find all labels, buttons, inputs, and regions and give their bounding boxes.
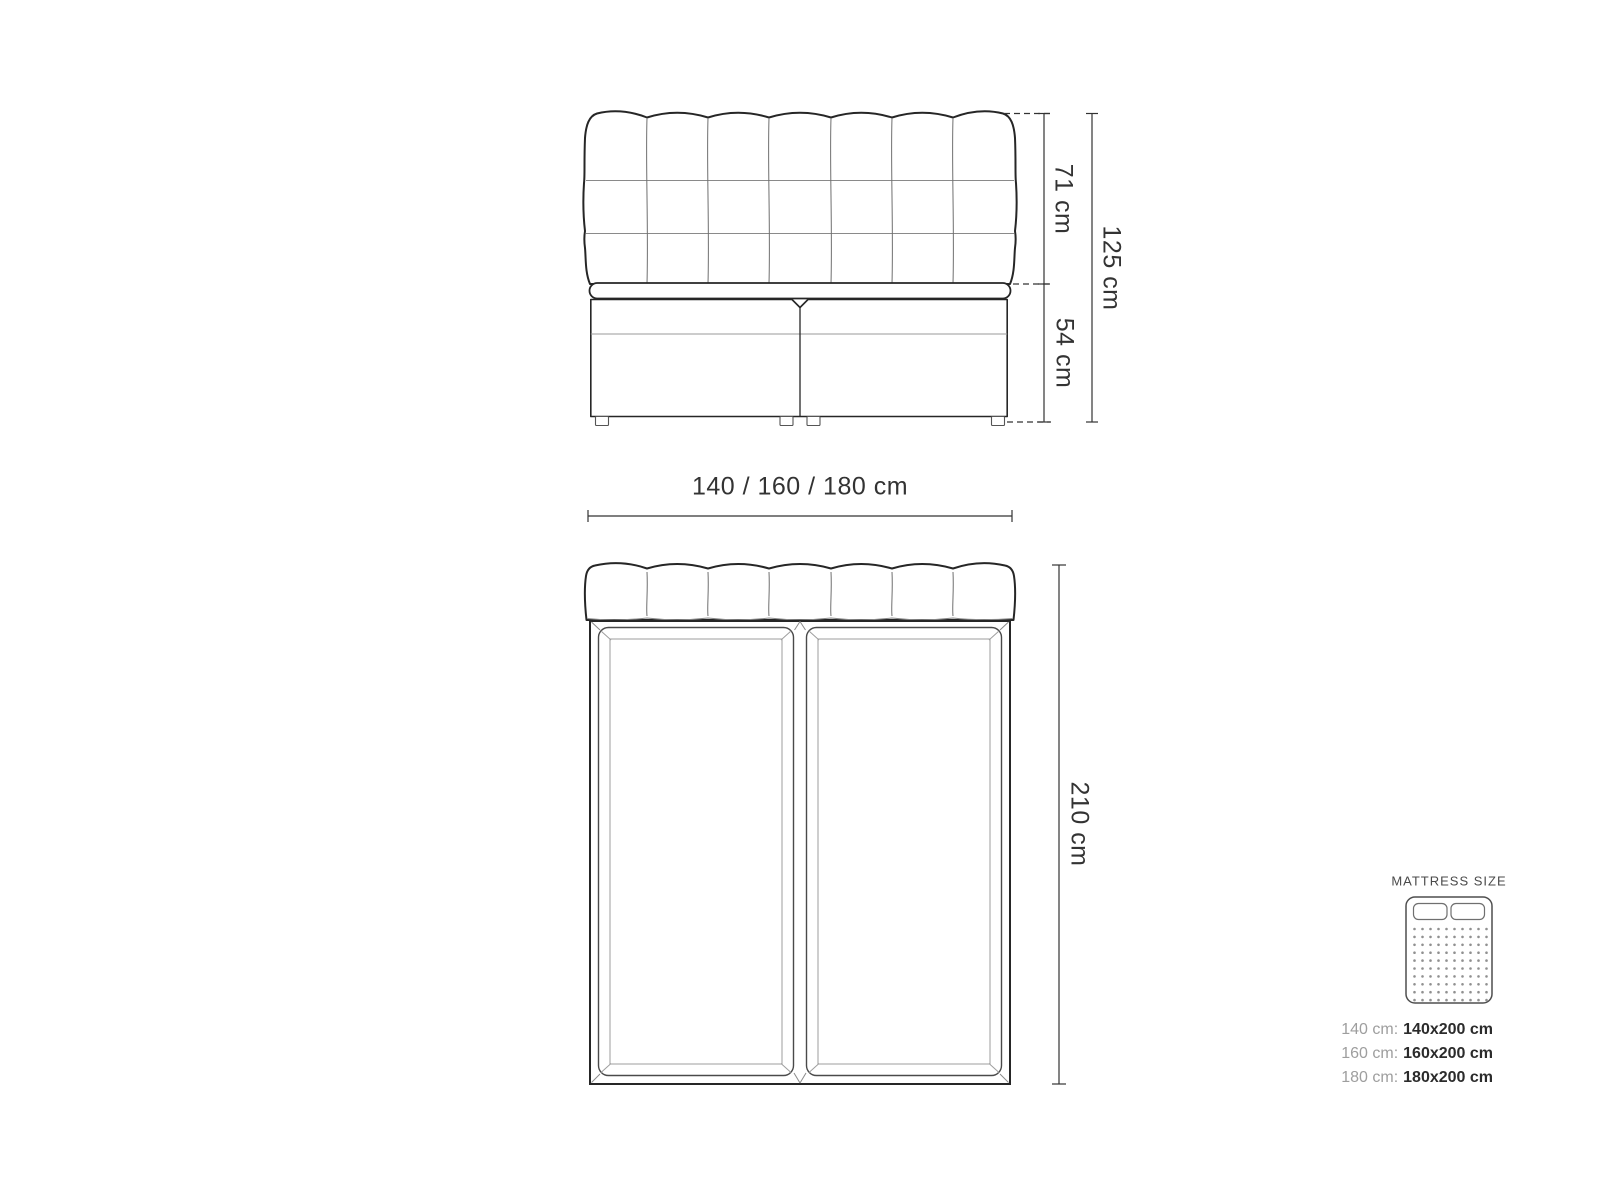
front-view: [583, 111, 1098, 522]
width-dimension-line: [588, 510, 1012, 522]
mattress-size-row: 160 cm:160x200 cm: [1341, 1042, 1493, 1066]
front-headboard-outline: [583, 111, 1016, 284]
dimension-base-height: 54 cm: [1050, 318, 1079, 389]
top-view: [585, 563, 1066, 1084]
front-mattress-band: [590, 283, 1011, 299]
mattress-size-table: 140 cm:140x200 cm 160 cm:160x200 cm 180 …: [1341, 1018, 1493, 1090]
size-value: 180x200 cm: [1403, 1069, 1493, 1086]
dimension-total-height: 125 cm: [1097, 226, 1126, 311]
size-value: 160x200 cm: [1403, 1045, 1493, 1062]
pillow-left-icon: [1414, 904, 1448, 920]
size-value: 140x200 cm: [1403, 1021, 1493, 1038]
mattress-size-row: 140 cm:140x200 cm: [1341, 1018, 1493, 1042]
size-label: 160 cm:: [1341, 1045, 1398, 1062]
mattress-size-icon: [1406, 897, 1492, 1003]
top-mattress-left: [599, 628, 794, 1076]
top-headboard-outline: [585, 563, 1015, 620]
dimension-width-options: 140 / 160 / 180 cm: [692, 473, 908, 502]
dimension-length: 210 cm: [1065, 782, 1094, 867]
dimension-headboard-height: 71 cm: [1049, 164, 1078, 235]
front-base-outline: [591, 300, 1007, 417]
pillow-right-icon: [1451, 904, 1485, 920]
bed-dimension-diagram: 71 cm 54 cm 125 cm 140 / 160 / 180 cm 21…: [0, 0, 1600, 1200]
size-label: 140 cm:: [1341, 1021, 1398, 1038]
front-feet: [596, 417, 1005, 426]
mattress-size-row: 180 cm:180x200 cm: [1341, 1066, 1493, 1090]
top-mattress-right: [807, 628, 1002, 1076]
size-label: 180 cm:: [1341, 1069, 1398, 1086]
mattress-size-title: MATTRESS SIZE: [1391, 874, 1506, 889]
